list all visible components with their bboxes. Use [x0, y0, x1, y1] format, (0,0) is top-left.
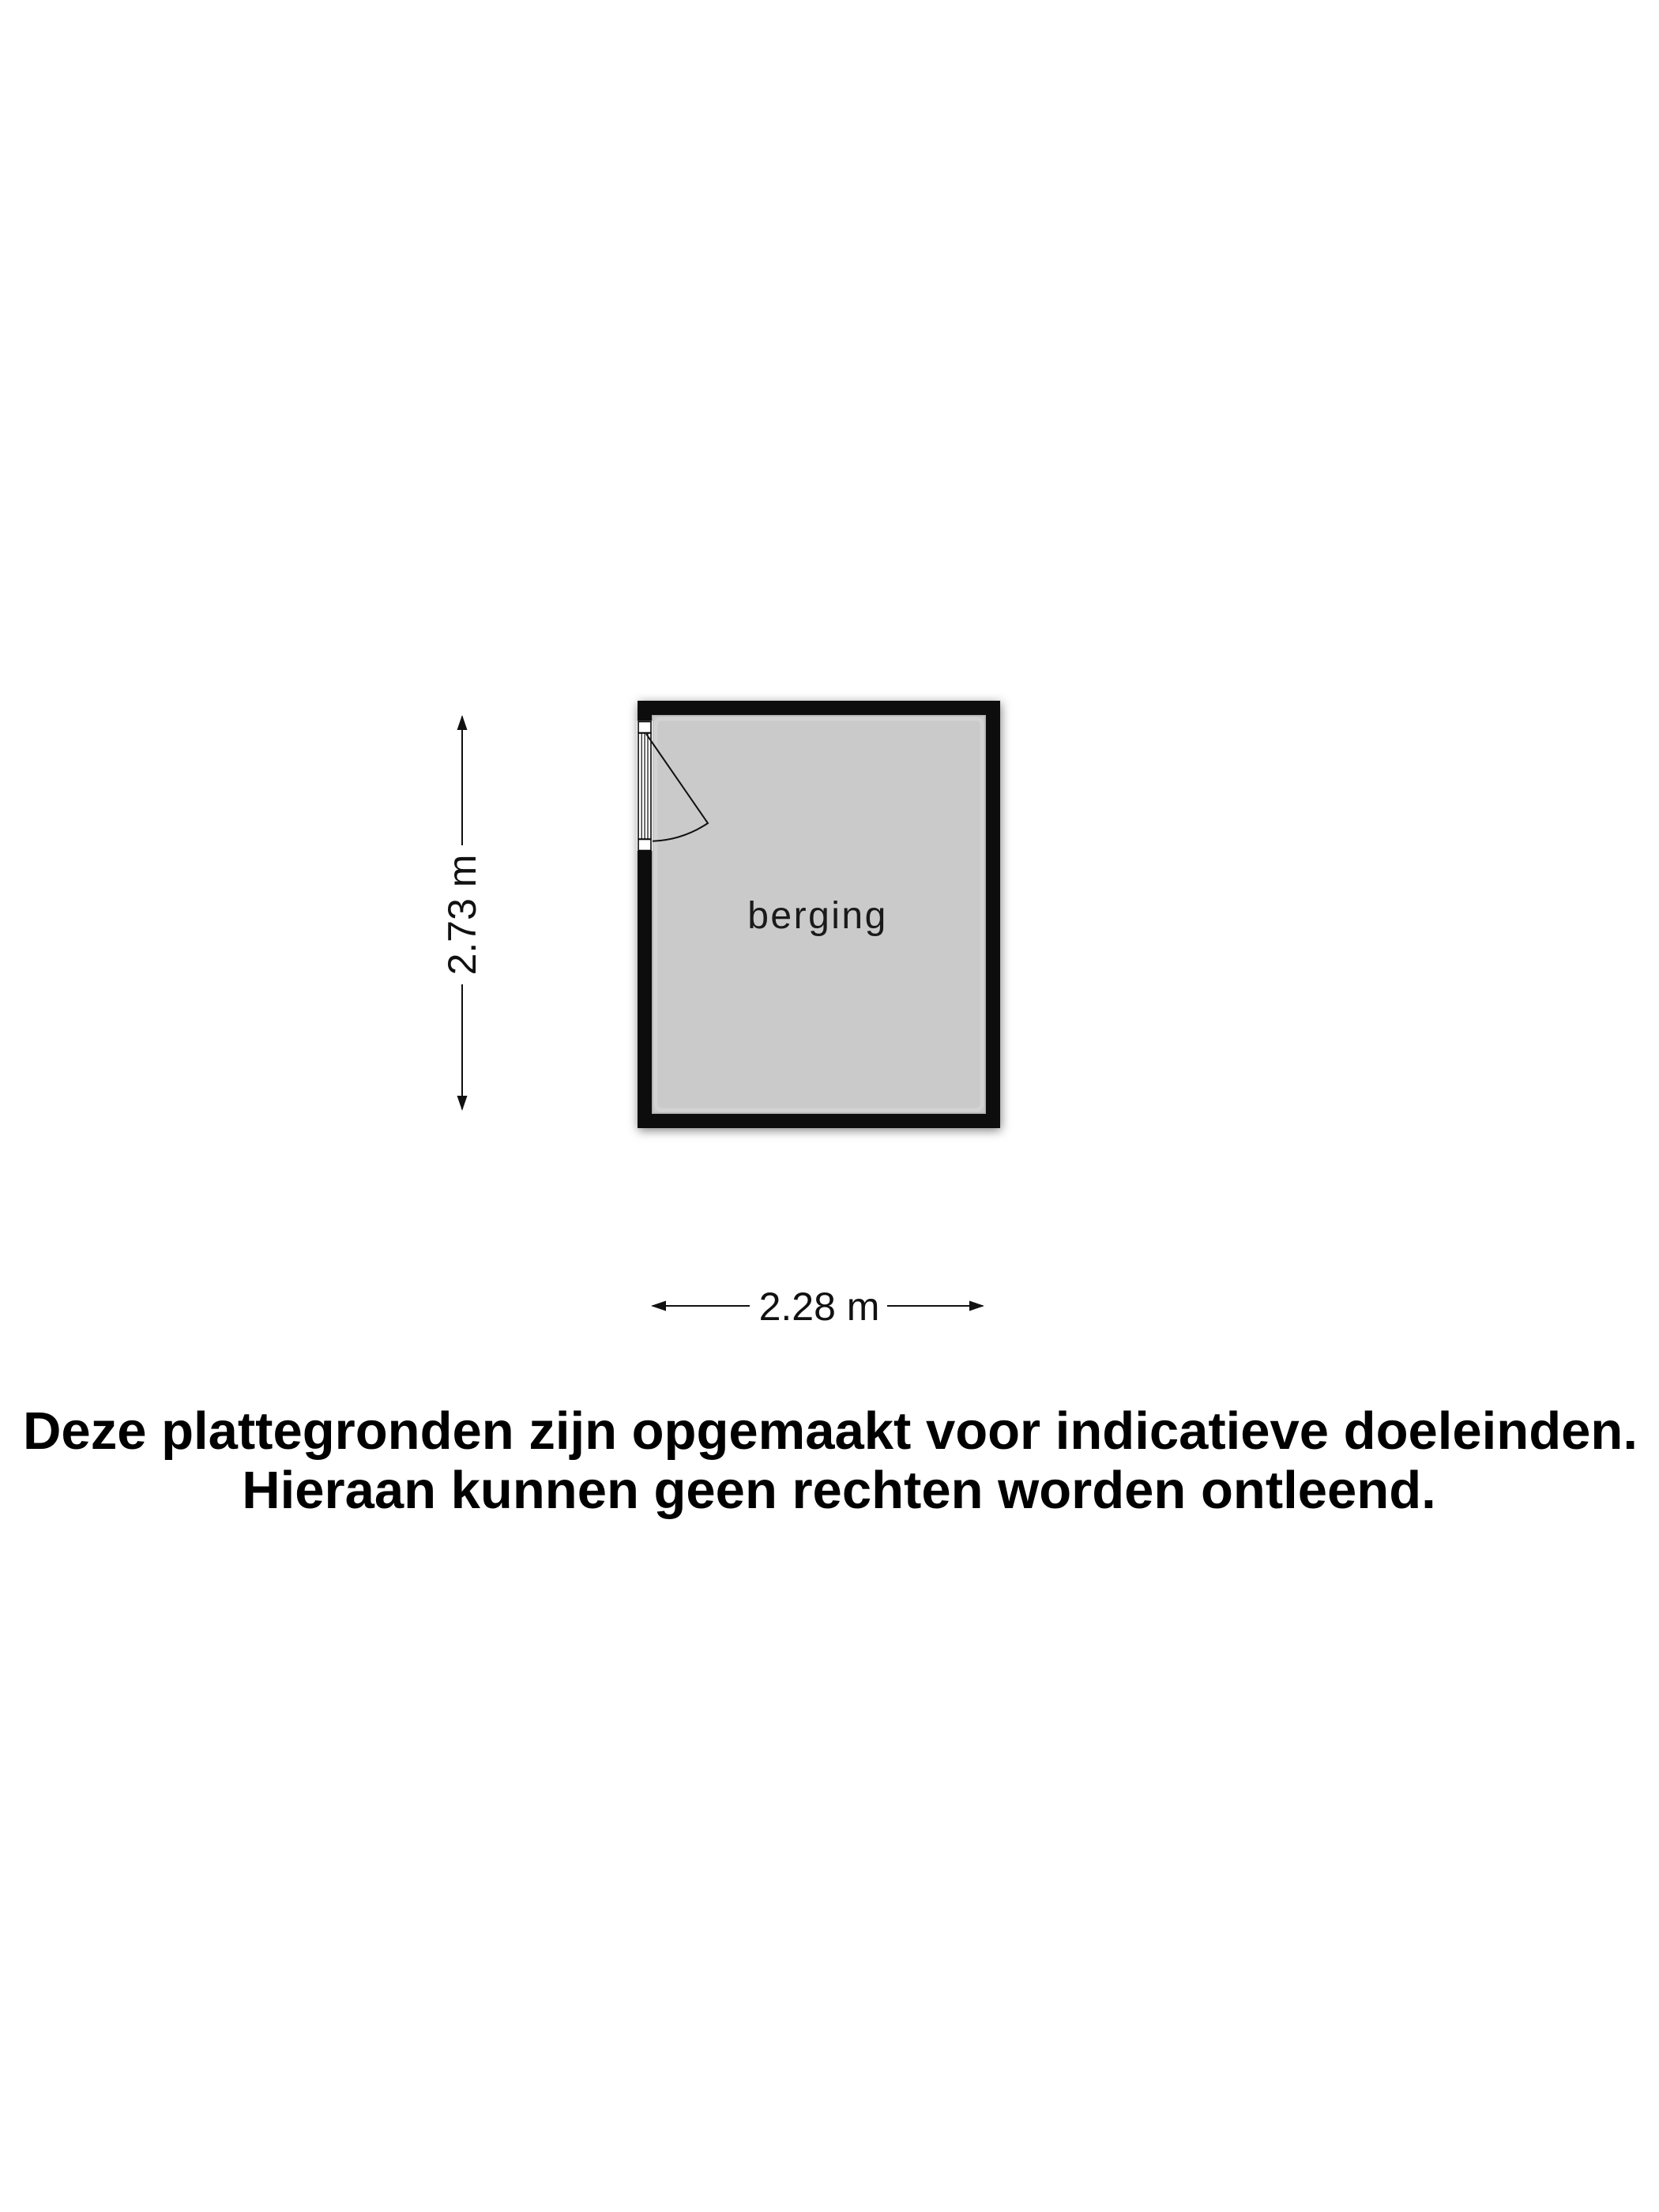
svg-text:berging: berging — [747, 895, 888, 937]
svg-text:Hieraan kunnen geen rechten wo: Hieraan kunnen geen rechten worden ontle… — [242, 1461, 1436, 1520]
svg-text:Deze plattegronden zijn opgema: Deze plattegronden zijn opgemaakt voor i… — [23, 1401, 1638, 1461]
svg-text:2.28 m: 2.28 m — [759, 1285, 880, 1329]
svg-text:2.73 m: 2.73 m — [440, 855, 484, 976]
